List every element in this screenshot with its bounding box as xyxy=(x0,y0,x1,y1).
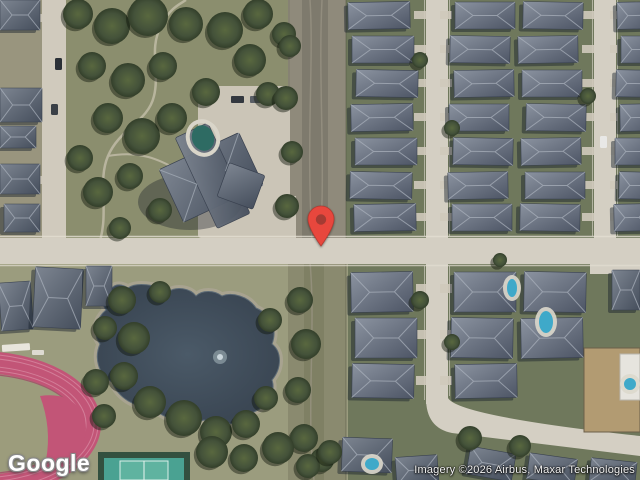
swimming-pool xyxy=(503,275,521,301)
car xyxy=(51,104,58,115)
house xyxy=(522,103,587,134)
driveway xyxy=(416,330,426,339)
driveway xyxy=(414,113,426,121)
house xyxy=(448,204,512,234)
house xyxy=(450,69,515,100)
google-logo[interactable]: Google xyxy=(8,450,90,477)
swimming-pool xyxy=(620,374,640,394)
house xyxy=(346,171,413,202)
map-pin[interactable] xyxy=(307,205,335,247)
driveway xyxy=(416,376,426,385)
house xyxy=(451,2,515,32)
swimming-pool xyxy=(361,454,383,474)
house xyxy=(347,271,414,315)
house xyxy=(0,0,40,33)
house xyxy=(350,203,417,234)
house xyxy=(521,172,585,202)
driveway xyxy=(414,11,426,19)
house xyxy=(0,164,40,197)
house xyxy=(449,137,514,168)
house xyxy=(352,69,419,100)
house xyxy=(344,1,411,32)
car xyxy=(55,58,62,70)
house xyxy=(617,36,640,66)
driveway xyxy=(582,147,594,155)
house xyxy=(514,35,579,66)
house xyxy=(347,103,414,134)
house xyxy=(28,267,83,333)
satellite-map[interactable]: Google Imagery ©2026 Airbus, Maxar Techn… xyxy=(0,0,640,480)
house xyxy=(348,36,414,66)
house xyxy=(451,363,518,401)
left-road xyxy=(42,0,66,252)
pin-inner-circle xyxy=(316,214,326,224)
driveway xyxy=(582,11,594,19)
house xyxy=(517,137,582,168)
house xyxy=(519,1,584,32)
house xyxy=(518,70,582,100)
house xyxy=(516,203,581,234)
driveway xyxy=(414,181,426,189)
house xyxy=(351,138,417,168)
driveway xyxy=(414,45,426,53)
house xyxy=(351,318,417,361)
house xyxy=(612,70,640,101)
car xyxy=(600,136,607,148)
tennis-court xyxy=(98,452,190,480)
house xyxy=(610,204,640,235)
house xyxy=(616,104,640,135)
swimming-pool xyxy=(535,307,557,337)
house xyxy=(613,2,640,33)
driveway xyxy=(582,45,594,53)
imagery-attribution: Imagery ©2026 Airbus, Maxar Technologies xyxy=(414,464,635,476)
house xyxy=(0,204,40,235)
house xyxy=(348,363,415,401)
house xyxy=(0,88,42,125)
house xyxy=(608,270,640,313)
house xyxy=(0,126,36,151)
house xyxy=(615,172,640,203)
driveway xyxy=(582,213,594,221)
house xyxy=(446,35,511,66)
driveway xyxy=(582,79,594,87)
house xyxy=(520,271,587,315)
driveway xyxy=(610,45,618,53)
house xyxy=(611,138,640,168)
driveway xyxy=(440,11,452,19)
driveway xyxy=(440,376,452,385)
house xyxy=(444,171,509,202)
